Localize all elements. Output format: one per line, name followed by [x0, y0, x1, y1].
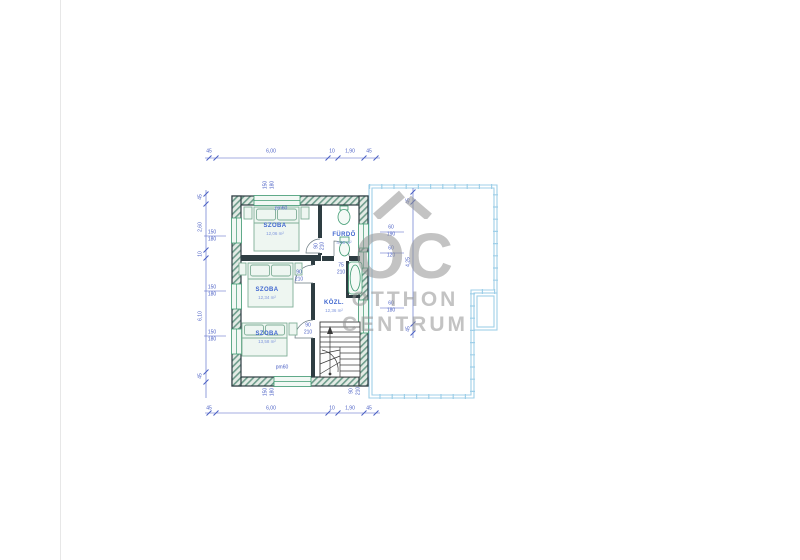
room-label: SZOBA12,34 m²: [256, 287, 279, 301]
dimension-label: 150: [208, 331, 216, 336]
terrace-outline: [369, 185, 497, 398]
dimension-label: 10: [199, 251, 204, 257]
dimension-label: 45: [199, 373, 204, 379]
dimension-label: 45: [199, 194, 204, 200]
room-label: KÖZL.12,36 m²: [324, 300, 344, 314]
room-area: 12,34 m²: [256, 295, 279, 301]
dimension-label: 90: [305, 324, 311, 329]
room-name: SZOBA: [256, 331, 279, 339]
room-area: 12,36 m²: [324, 308, 344, 314]
dimension-label: 150: [264, 388, 269, 396]
dimension-label: 180: [271, 181, 276, 189]
dimension-label: 180: [208, 338, 216, 343]
dimension-label: 150: [208, 286, 216, 291]
dimension-label: 1,90: [345, 407, 355, 412]
room-label: SZOBA12,06 m²: [264, 223, 287, 237]
room-label: SZOBA13,58 m²: [256, 331, 279, 345]
dimension-label: 90: [296, 271, 302, 276]
dimension-label: pm60: [275, 207, 288, 212]
dimension-label: 120: [387, 254, 395, 259]
dimension-label: 210: [337, 271, 345, 276]
dimension-label: 60: [388, 226, 394, 231]
dimension-label: 90: [350, 388, 355, 394]
room-name: SZOBA: [256, 287, 279, 295]
dimension-label: 6,10: [199, 311, 204, 321]
dimension-label: 45: [366, 407, 372, 412]
room-area: 12,06 m²: [264, 231, 287, 237]
dimension-label: 6,00: [266, 150, 276, 155]
staircase: [320, 322, 360, 377]
dimension-label: 210: [295, 278, 303, 283]
dimension-label: 10: [329, 407, 335, 412]
room-name: FÜRDŐ: [332, 232, 355, 240]
dimension-label: 180: [387, 309, 395, 314]
dimension-label: 45: [407, 326, 412, 332]
dimension-label: 210: [321, 242, 326, 250]
dimension-label: 180: [208, 293, 216, 298]
room-name: KÖZL.: [324, 300, 344, 308]
dimension-label: 60: [388, 302, 394, 307]
dimension-label: 1,90: [345, 150, 355, 155]
dimension-label: 150: [264, 181, 269, 189]
dimension-label: 150: [208, 231, 216, 236]
room-name: SZOBA: [264, 223, 287, 231]
dimension-label: 2,60: [199, 222, 204, 232]
dimension-label: 45: [407, 198, 412, 204]
room-label: FÜRDŐ4,08 m²: [332, 232, 355, 246]
dimension-label: 210: [357, 387, 362, 395]
dimension-label: 60: [388, 247, 394, 252]
dimension-label: 6,00: [266, 407, 276, 412]
room-area: 13,58 m²: [256, 339, 279, 345]
dimension-label: pm60: [276, 366, 289, 371]
dimension-label: 210: [304, 331, 312, 336]
dimension-label: 180: [208, 238, 216, 243]
dimension-label: 45: [206, 407, 212, 412]
bathroom-fixtures: [338, 206, 362, 294]
dimension-label: 45: [366, 150, 372, 155]
dimension-label: 4,25: [407, 257, 412, 267]
dimension-label: 10: [329, 150, 335, 155]
dimension-label: 45: [206, 150, 212, 155]
dimension-label: 75: [338, 264, 344, 269]
dimension-label: 190: [387, 233, 395, 238]
dimension-label: 180: [271, 388, 276, 396]
floor-plan-drawing: [0, 0, 800, 560]
floorplan-page: 456,00101,9045456,00101,9045452,60106,10…: [0, 0, 800, 560]
room-area: 4,08 m²: [332, 240, 355, 246]
